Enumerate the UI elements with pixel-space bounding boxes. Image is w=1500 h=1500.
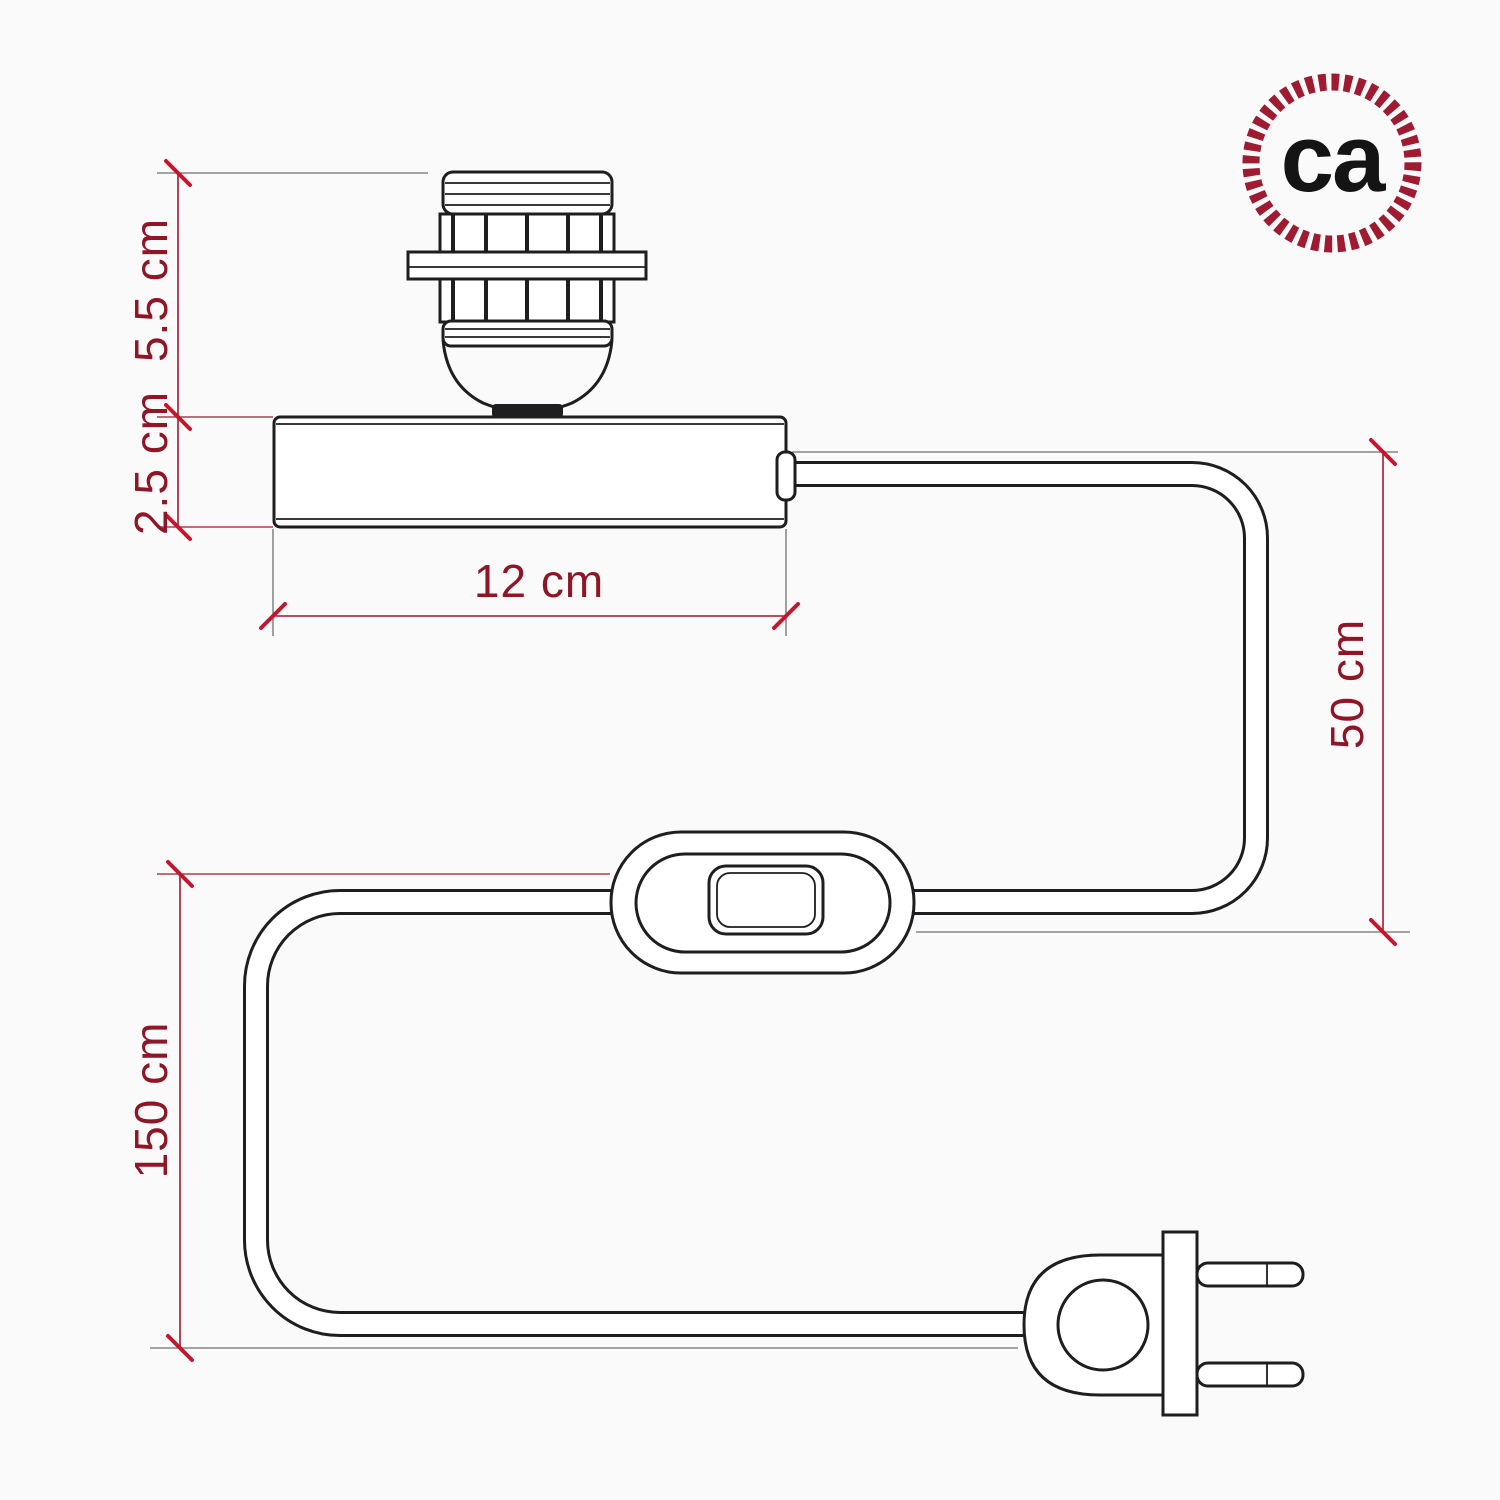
plug-prong-bottom	[1197, 1363, 1303, 1386]
extension-lines	[150, 173, 1410, 1348]
lamp-base	[274, 417, 786, 527]
cable-gland	[777, 452, 795, 500]
socket-neck	[492, 404, 563, 418]
dimension-label-base-width: 12 cm	[474, 554, 604, 608]
switch-button	[709, 866, 823, 934]
dimension-ticks	[166, 161, 1395, 1360]
logo-text: ca	[1281, 111, 1384, 207]
dimension-label-base-height: 2.5 cm	[124, 391, 178, 535]
plug-screw-hole	[1058, 1280, 1148, 1370]
dimension-drawing: 5.5 cm 2.5 cm 12 cm 50 cm 150 cm ca	[0, 0, 1500, 1500]
dimension-lines	[178, 173, 1383, 1348]
lamp-socket	[408, 172, 646, 418]
inline-switch	[611, 832, 914, 973]
plug-flange	[1163, 1232, 1197, 1415]
dimension-label-socket-height: 5.5 cm	[124, 218, 178, 362]
power-plug	[1024, 1232, 1303, 1415]
dimension-label-lower-cable: 150 cm	[124, 1022, 178, 1179]
creative-cables-logo: ca	[1242, 73, 1422, 253]
dimension-label-upper-cable: 50 cm	[1320, 619, 1374, 749]
plug-prong-top	[1197, 1263, 1303, 1286]
